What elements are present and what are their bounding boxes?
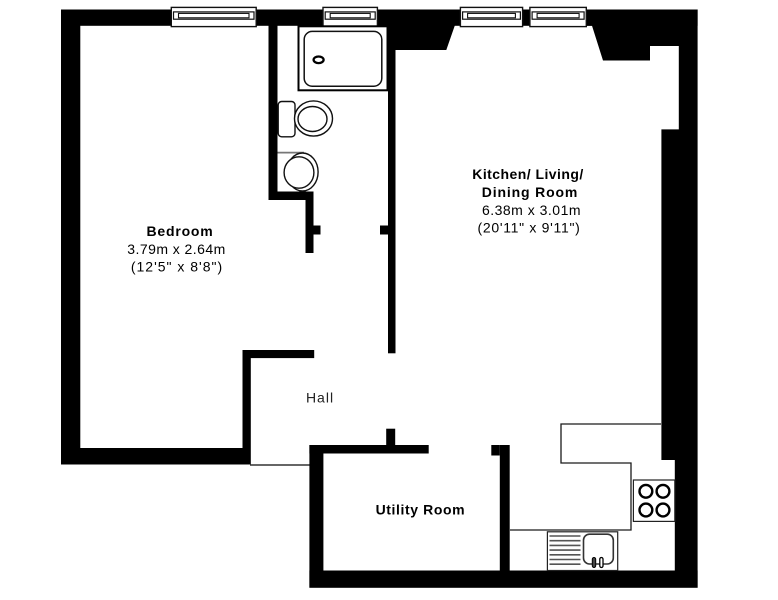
svg-text:Bedroom: Bedroom bbox=[146, 223, 213, 239]
svg-text:(20'11" x 9'11"): (20'11" x 9'11") bbox=[477, 219, 580, 235]
svg-text:Dining Room: Dining Room bbox=[482, 184, 578, 200]
svg-text:Kitchen/ Living/: Kitchen/ Living/ bbox=[472, 166, 583, 182]
svg-text:Utility Room: Utility Room bbox=[376, 501, 466, 517]
svg-text:(12'5" x 8'8"): (12'5" x 8'8") bbox=[131, 258, 223, 274]
svg-text:Hall: Hall bbox=[306, 390, 334, 406]
svg-text:3.79m x 2.64m: 3.79m x 2.64m bbox=[127, 241, 225, 257]
svg-text:6.38m x 3.01m: 6.38m x 3.01m bbox=[482, 202, 581, 218]
